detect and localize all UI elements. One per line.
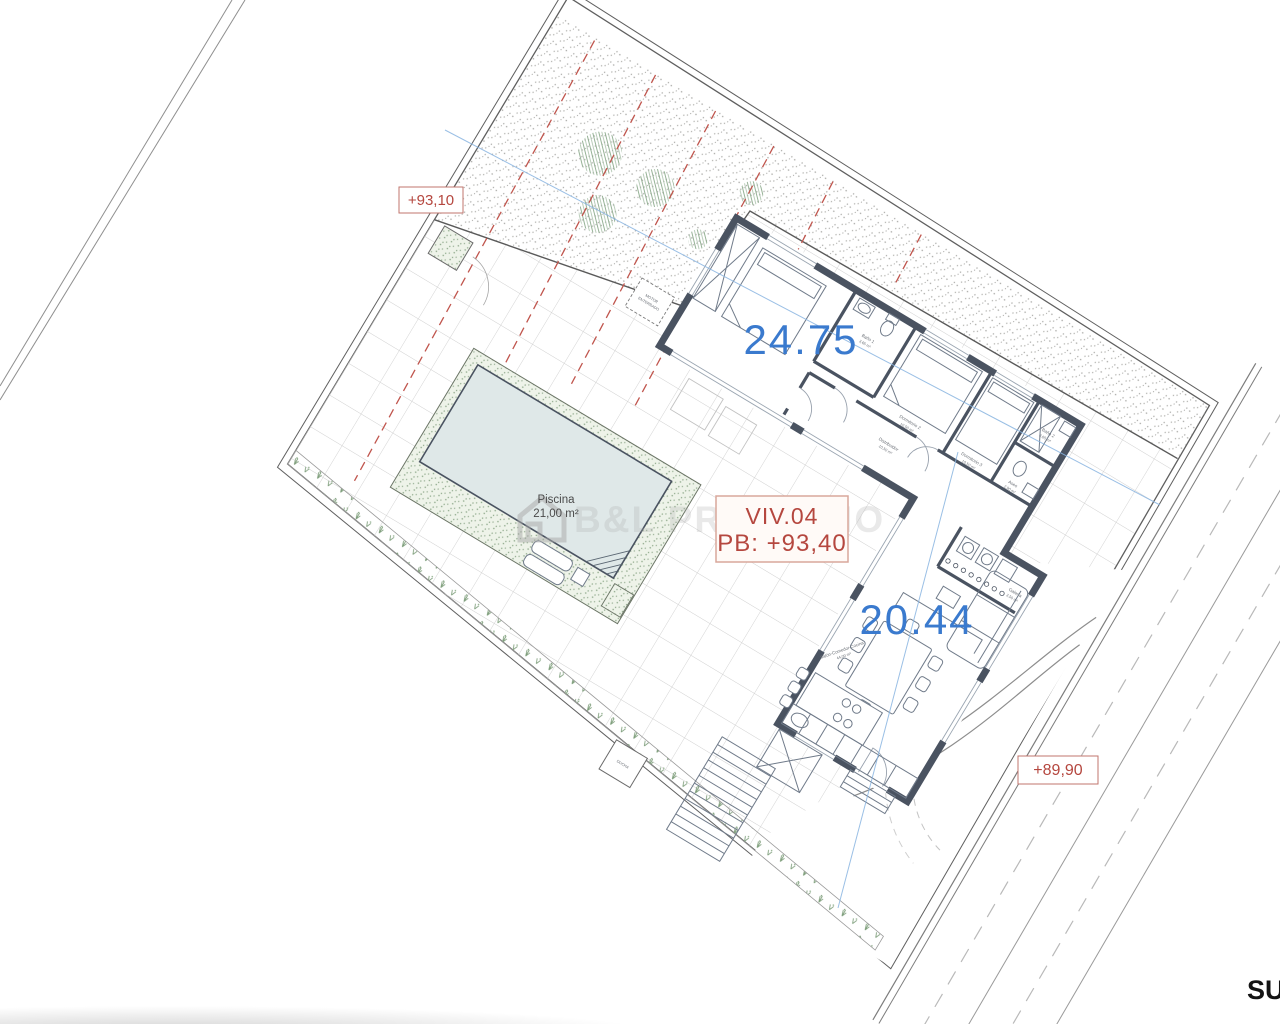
unit-label-box: VIV.04 PB: +93,40 <box>716 496 848 562</box>
corner-partial-text: SU <box>1247 975 1280 1005</box>
floor-plan-canvas: MOTOR ENTERRADO DUCHA <box>0 0 1280 1024</box>
elevation-label-right: +89,90 <box>1018 756 1098 784</box>
pool-area: 21,00 m² <box>533 508 579 520</box>
area-number-upper: 24.75 <box>743 316 858 363</box>
area-number-lower: 20.44 <box>859 596 974 643</box>
pool-name: Piscina <box>537 494 575 506</box>
elevation-right-text: +89,90 <box>1033 762 1082 779</box>
unit-id-text: VIV.04 <box>746 503 819 529</box>
elevation-label-left: +93,10 <box>399 187 463 213</box>
unit-level-text: PB: +93,40 <box>717 530 846 557</box>
elevation-left-text: +93,10 <box>408 192 454 209</box>
